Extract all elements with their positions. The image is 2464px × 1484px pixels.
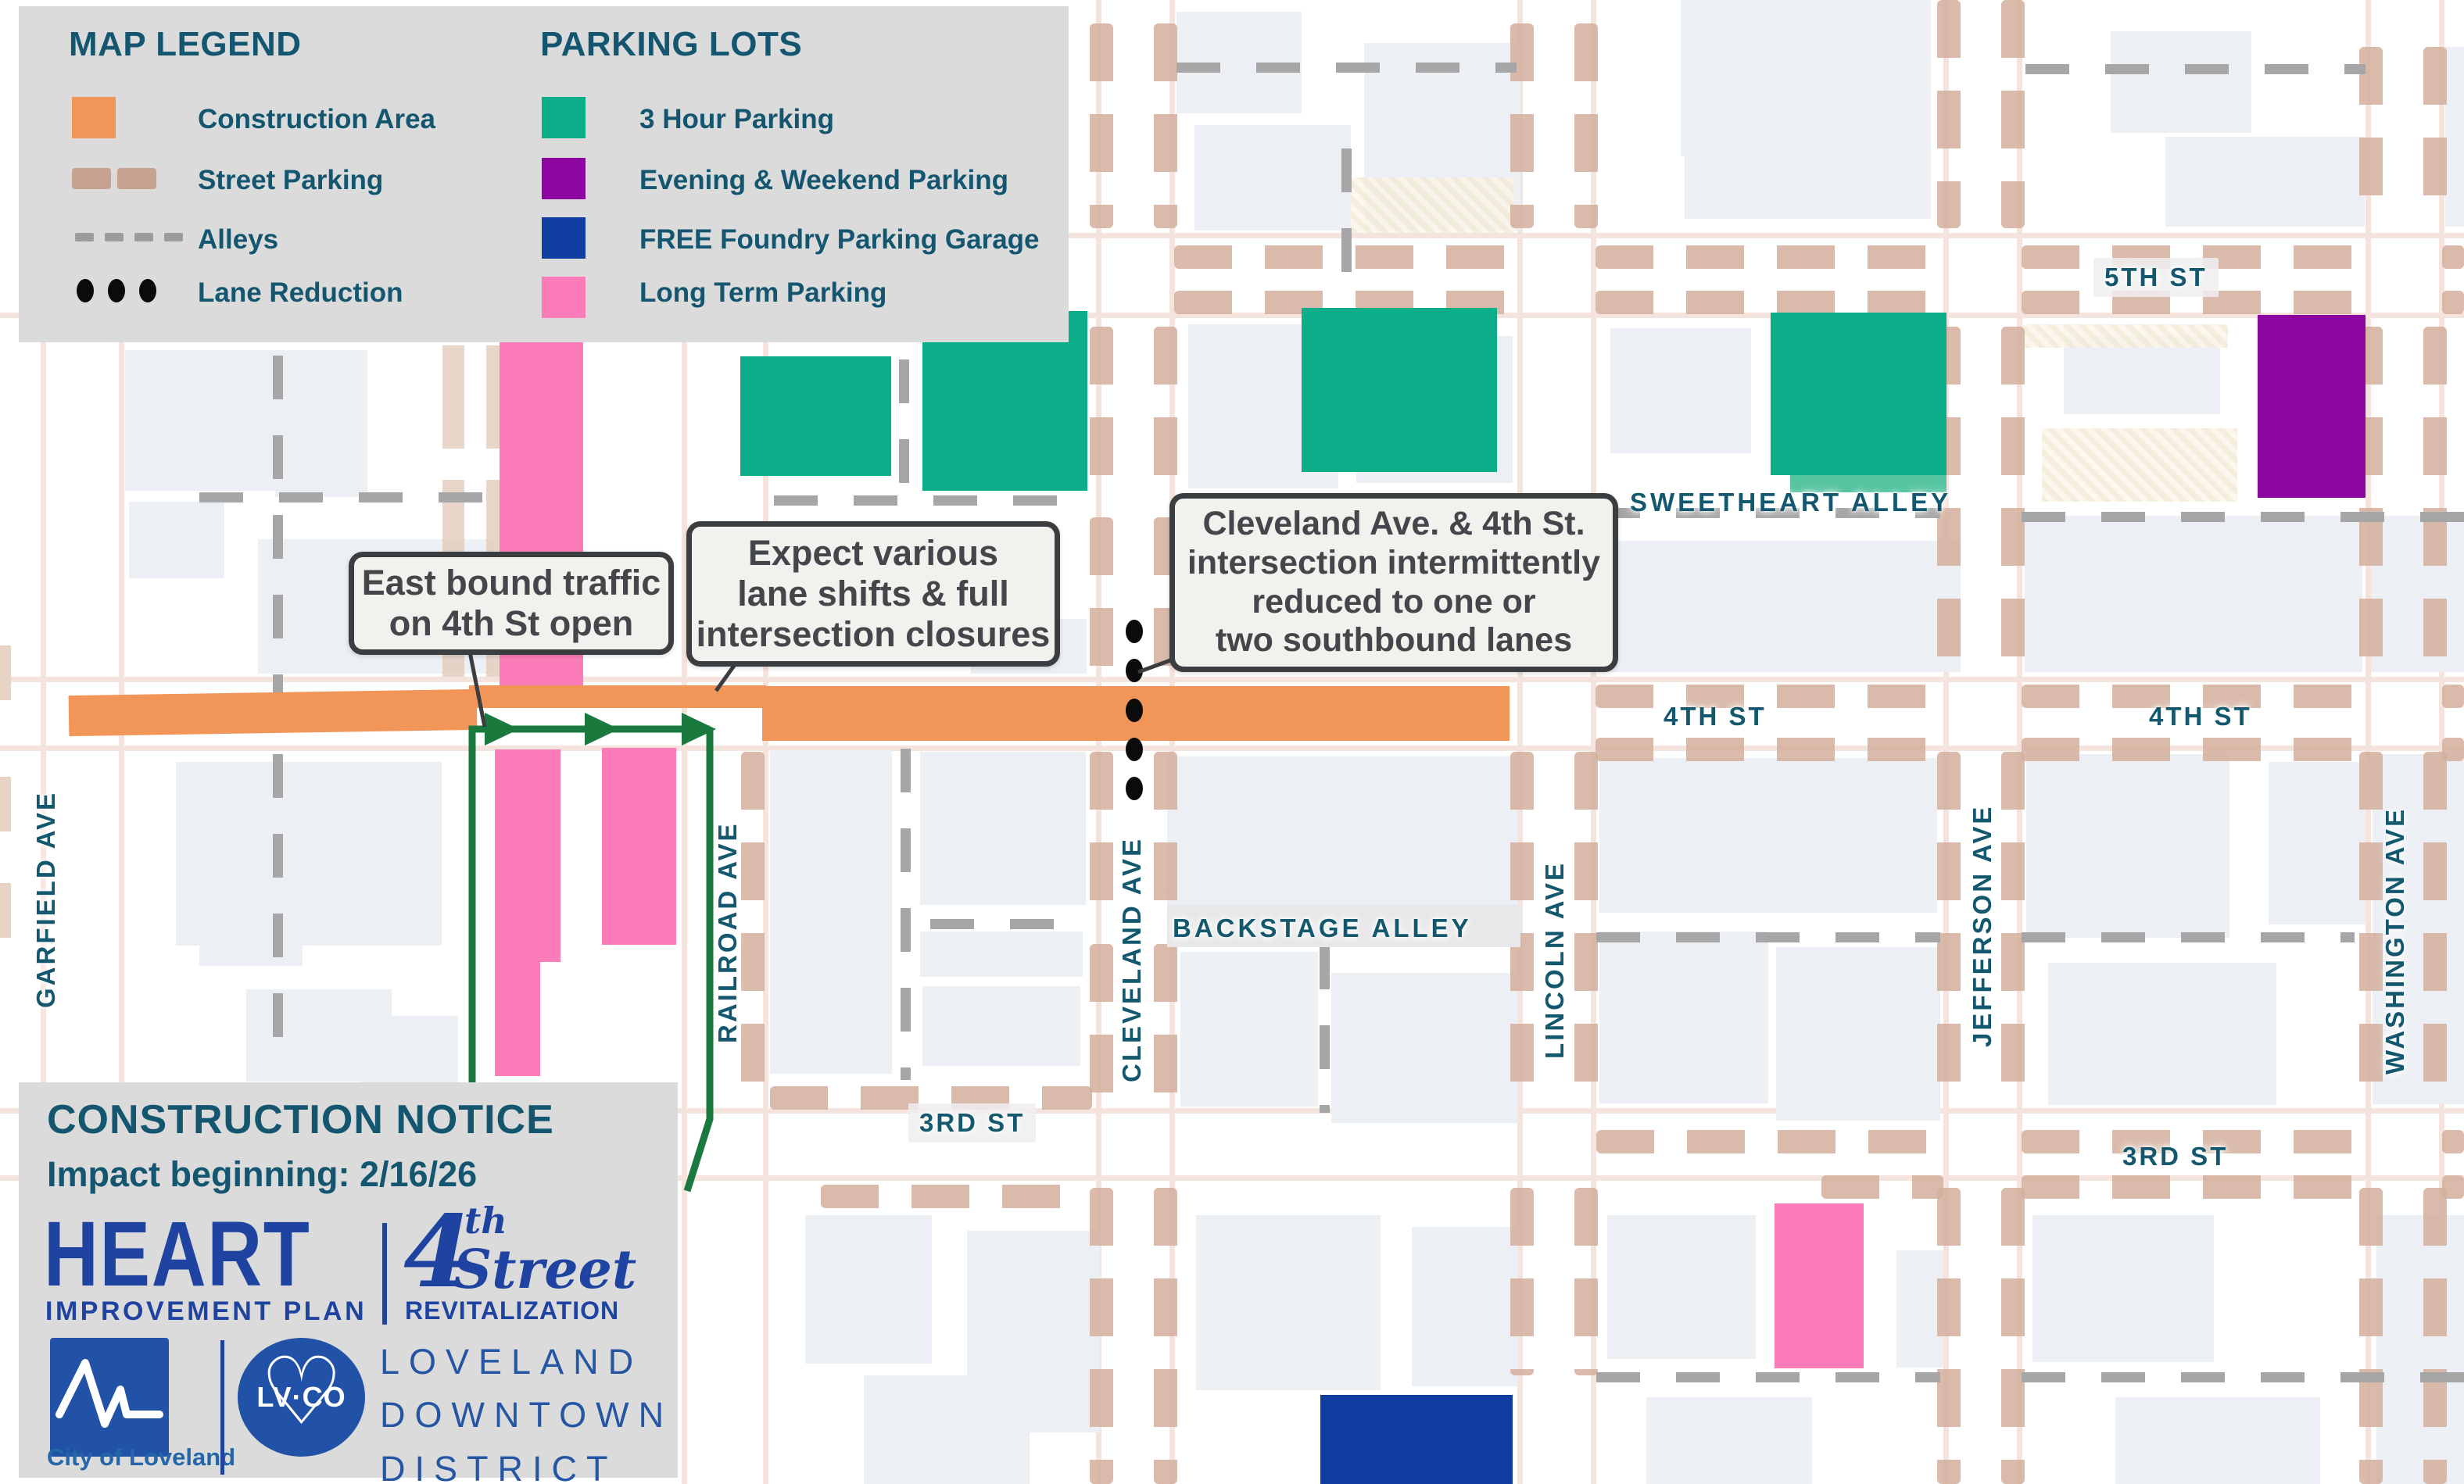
callout-lane-shifts: Expect various lane shifts & full inters… (686, 521, 1060, 667)
lane-reduction-swatch-icon (108, 279, 125, 302)
callout-line: Cleveland Ave. & 4th St. (1175, 505, 1613, 544)
lane-reduction-swatch-icon (77, 279, 94, 302)
callout-line: reduced to one or (1175, 583, 1613, 622)
callout-line: two southbound lanes (1175, 621, 1613, 660)
parking-item-label: Long Term Parking (639, 277, 886, 309)
map-legend-panel: MAP LEGEND PARKING LOTS Construction Are… (19, 6, 1069, 342)
callout-line: on 4th St open (354, 603, 668, 644)
lane-reduction-dot (1126, 738, 1143, 761)
parking-item-label: 3 Hour Parking (639, 104, 834, 135)
heart-logo-subtitle: IMPROVEMENT PLAN (45, 1296, 367, 1327)
logo-divider (382, 1223, 387, 1325)
logo-divider (220, 1340, 224, 1475)
street-parking-swatch-icon (117, 168, 156, 189)
legend-title: MAP LEGEND (69, 25, 302, 64)
heartbeat-icon (50, 1338, 169, 1457)
legend-item-label: Construction Area (198, 104, 435, 135)
parking-item-label: FREE Foundry Parking Garage (639, 224, 1040, 256)
callout-eastbound-traffic: East bound traffic on 4th St open (349, 552, 674, 655)
lane-reduction-dots (1126, 620, 1143, 800)
construction-notice-panel: CONSTRUCTION NOTICE Impact beginning: 2/… (19, 1082, 678, 1478)
notice-impact: Impact beginning: 2/16/26 (47, 1154, 477, 1195)
lane-reduction-dot (1126, 777, 1143, 800)
notice-title: CONSTRUCTION NOTICE (47, 1096, 554, 1143)
parking-title: PARKING LOTS (540, 25, 802, 64)
alley-swatch-icon (164, 233, 183, 241)
arrow-right-icon (485, 713, 519, 746)
legend-item-label: Street Parking (198, 165, 383, 196)
lane-reduction-dot (1126, 620, 1143, 643)
ldd-line: LOVELAND (380, 1336, 673, 1389)
alley-swatch-icon (75, 233, 94, 241)
parking-item-label: Evening & Weekend Parking (639, 165, 1008, 196)
evening-weekend-swatch-icon (542, 158, 586, 199)
legend-item-label: Alleys (198, 224, 278, 256)
lane-reduction-swatch-icon (139, 279, 156, 302)
lvco-heart-logo: ♡ LV·CO (238, 1338, 365, 1457)
construction-swatch-icon (72, 97, 116, 138)
leader-line (468, 644, 485, 727)
alley-swatch-icon (105, 233, 124, 241)
legend-item-label: Lane Reduction (198, 277, 403, 309)
construction-notice-map: GARFIELD AVE RAILROAD AVE CLEVELAND AVE … (0, 0, 2464, 1484)
heart-logo: HEART (44, 1201, 310, 1307)
foundry-garage-swatch-icon (542, 217, 586, 259)
lane-reduction-dot (1126, 699, 1143, 722)
arrow-right-icon (585, 713, 619, 746)
long-term-swatch-icon (542, 277, 586, 318)
callout-line: lane shifts & full (692, 574, 1055, 614)
leader-line (1138, 660, 1173, 672)
callout-line: Expect various (692, 533, 1055, 574)
callout-cleveland-intersection: Cleveland Ave. & 4th St. intersection in… (1169, 493, 1618, 672)
detour-route-east-leg (687, 729, 710, 1191)
city-of-loveland-logo (50, 1338, 169, 1457)
callout-line: intersection closures (692, 614, 1055, 655)
callout-line: intersection intermittently (1175, 544, 1613, 583)
lvco-label: LV·CO (256, 1381, 346, 1414)
fourth-street-logo: 4 th Street REVITALIZATION (403, 1200, 677, 1328)
fourth-street-logo-sub: REVITALIZATION (405, 1296, 619, 1325)
fourth-street-logo-street: Street (453, 1239, 636, 1301)
ldd-line: DOWNTOWN (380, 1389, 673, 1442)
detour-route-west-leg (472, 729, 710, 1082)
street-parking-swatch-icon (72, 168, 111, 189)
city-of-loveland-label: City of Loveland (47, 1443, 235, 1471)
three-hour-swatch-icon (542, 97, 586, 138)
loveland-downtown-district-label: LOVELAND DOWNTOWN DISTRICT (380, 1336, 673, 1484)
alley-swatch-icon (134, 233, 153, 241)
callout-line: East bound traffic (354, 563, 668, 603)
fourth-street-logo-th: th (464, 1200, 507, 1242)
ldd-line: DISTRICT (380, 1443, 673, 1484)
